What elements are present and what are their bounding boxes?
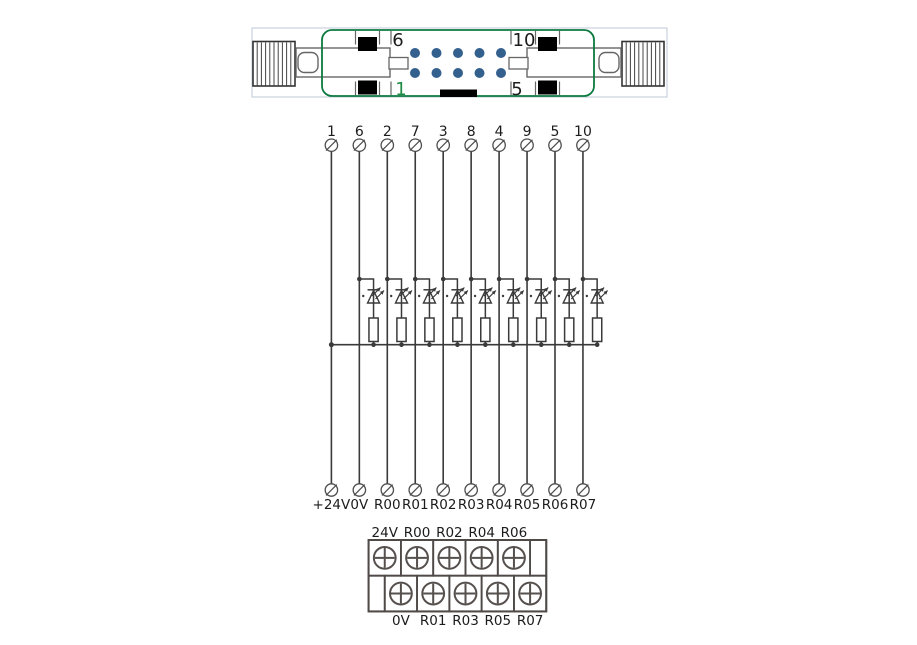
led-arrow-tail-dot: [586, 295, 588, 297]
connector-label-bottom-right: 5: [511, 79, 522, 100]
top-pin-number-0: 1: [327, 124, 336, 140]
resistor-6: [509, 318, 518, 342]
resistor-4: [453, 318, 462, 342]
plug-tab-right: [509, 58, 528, 70]
resistor-7: [537, 318, 546, 342]
top-pin-number-6: 4: [495, 124, 504, 140]
junction-dot: [595, 342, 600, 347]
latch-block: [538, 81, 557, 95]
junction-dot: [511, 342, 516, 347]
top-pin-number-9: 10: [574, 124, 592, 140]
led-arrow-tail-dot: [446, 295, 448, 297]
led-arrow-tail-dot: [530, 295, 532, 297]
block-top-label-4: R06: [501, 525, 528, 541]
plug-tab-left: [389, 58, 408, 70]
junction-dot: [455, 342, 460, 347]
resistor-1: [369, 318, 378, 342]
top-pin-number-7: 9: [523, 124, 532, 140]
block-bottom-label-2: R03: [452, 613, 479, 629]
bottom-wire-label-2: R00: [374, 497, 401, 513]
top-pin-number-1: 6: [355, 124, 364, 140]
connector-pin-dot: [432, 48, 442, 58]
connector-pin-dot: [496, 68, 506, 78]
top-pin-number-8: 5: [551, 124, 560, 140]
bottom-wire-label-0: +24V: [313, 497, 351, 513]
connector-pin-dot: [475, 48, 485, 58]
bottom-wire-label-3: R01: [402, 497, 429, 513]
block-top-label-0: 24V: [372, 525, 399, 541]
resistor-9: [593, 318, 602, 342]
polarizing-bar: [440, 90, 477, 98]
connector-label-top-left: 6: [392, 30, 403, 51]
junction-dot: [399, 342, 404, 347]
block-top-label-2: R02: [436, 525, 463, 541]
junction-dot: [371, 342, 376, 347]
block-bottom-label-4: R07: [517, 613, 544, 629]
led-arrow-tail-dot: [558, 295, 560, 297]
bottom-wire-label-9: R07: [570, 497, 597, 513]
bottom-wire-label-7: R05: [514, 497, 541, 513]
connector-label-bottom-left: 1: [395, 79, 406, 100]
connector-label-top-right: 10: [513, 30, 536, 51]
connector-pin-dot: [410, 68, 420, 78]
junction-dot: [427, 342, 432, 347]
junction-dot: [567, 342, 572, 347]
top-pin-number-5: 8: [467, 124, 476, 140]
block-bottom-label-0: 0V: [392, 613, 411, 629]
led-arrow-tail-dot: [474, 295, 476, 297]
connector-pin-dot: [410, 48, 420, 58]
connector-pin-dot: [475, 68, 485, 78]
junction-dot: [539, 342, 544, 347]
plug-cap-left: [298, 53, 318, 73]
plug-cap-right: [599, 53, 619, 73]
latch-block: [358, 81, 377, 95]
bottom-wire-label-1: 0V: [350, 497, 369, 513]
latch-block: [358, 37, 377, 51]
led-arrow-tail-dot: [502, 295, 504, 297]
bottom-wire-label-8: R06: [542, 497, 569, 513]
block-bottom-label-1: R01: [420, 613, 447, 629]
top-pin-number-4: 3: [439, 124, 448, 140]
connector-pin-dot: [432, 68, 442, 78]
block-top-label-3: R04: [468, 525, 495, 541]
block-top-label-1: R00: [404, 525, 431, 541]
bottom-wire-label-6: R04: [486, 497, 513, 513]
latch-block: [538, 37, 557, 51]
junction-dot: [483, 342, 488, 347]
top-pin-number-3: 7: [411, 124, 420, 140]
resistor-5: [481, 318, 490, 342]
connector-pin-dot: [453, 68, 463, 78]
connector-graphic: 61015: [252, 28, 667, 100]
connector-pin-dot: [453, 48, 463, 58]
bottom-wire-label-4: R02: [430, 497, 457, 513]
block-bottom-label-3: R05: [485, 613, 512, 629]
resistor-2: [397, 318, 406, 342]
led-arrow-tail-dot: [418, 295, 420, 297]
schematic-wiring: 1+24V60V2R007R013R028R034R049R055R0610R0…: [313, 124, 608, 513]
circuit-diagram-page: 61015 1+24V60V2R007R013R028R034R049R055R…: [0, 0, 917, 645]
led-arrow-tail-dot: [390, 295, 392, 297]
wiring-diagram: 61015 1+24V60V2R007R013R028R034R049R055R…: [0, 0, 917, 645]
bottom-wire-label-5: R03: [458, 497, 485, 513]
top-pin-number-2: 2: [383, 124, 392, 140]
connector-pin-dot: [496, 48, 506, 58]
terminal-block: 24V0VR00R01R02R03R04R05R06R07: [369, 525, 547, 629]
resistor-3: [425, 318, 434, 342]
led-arrow-tail-dot: [362, 295, 364, 297]
resistor-8: [565, 318, 574, 342]
